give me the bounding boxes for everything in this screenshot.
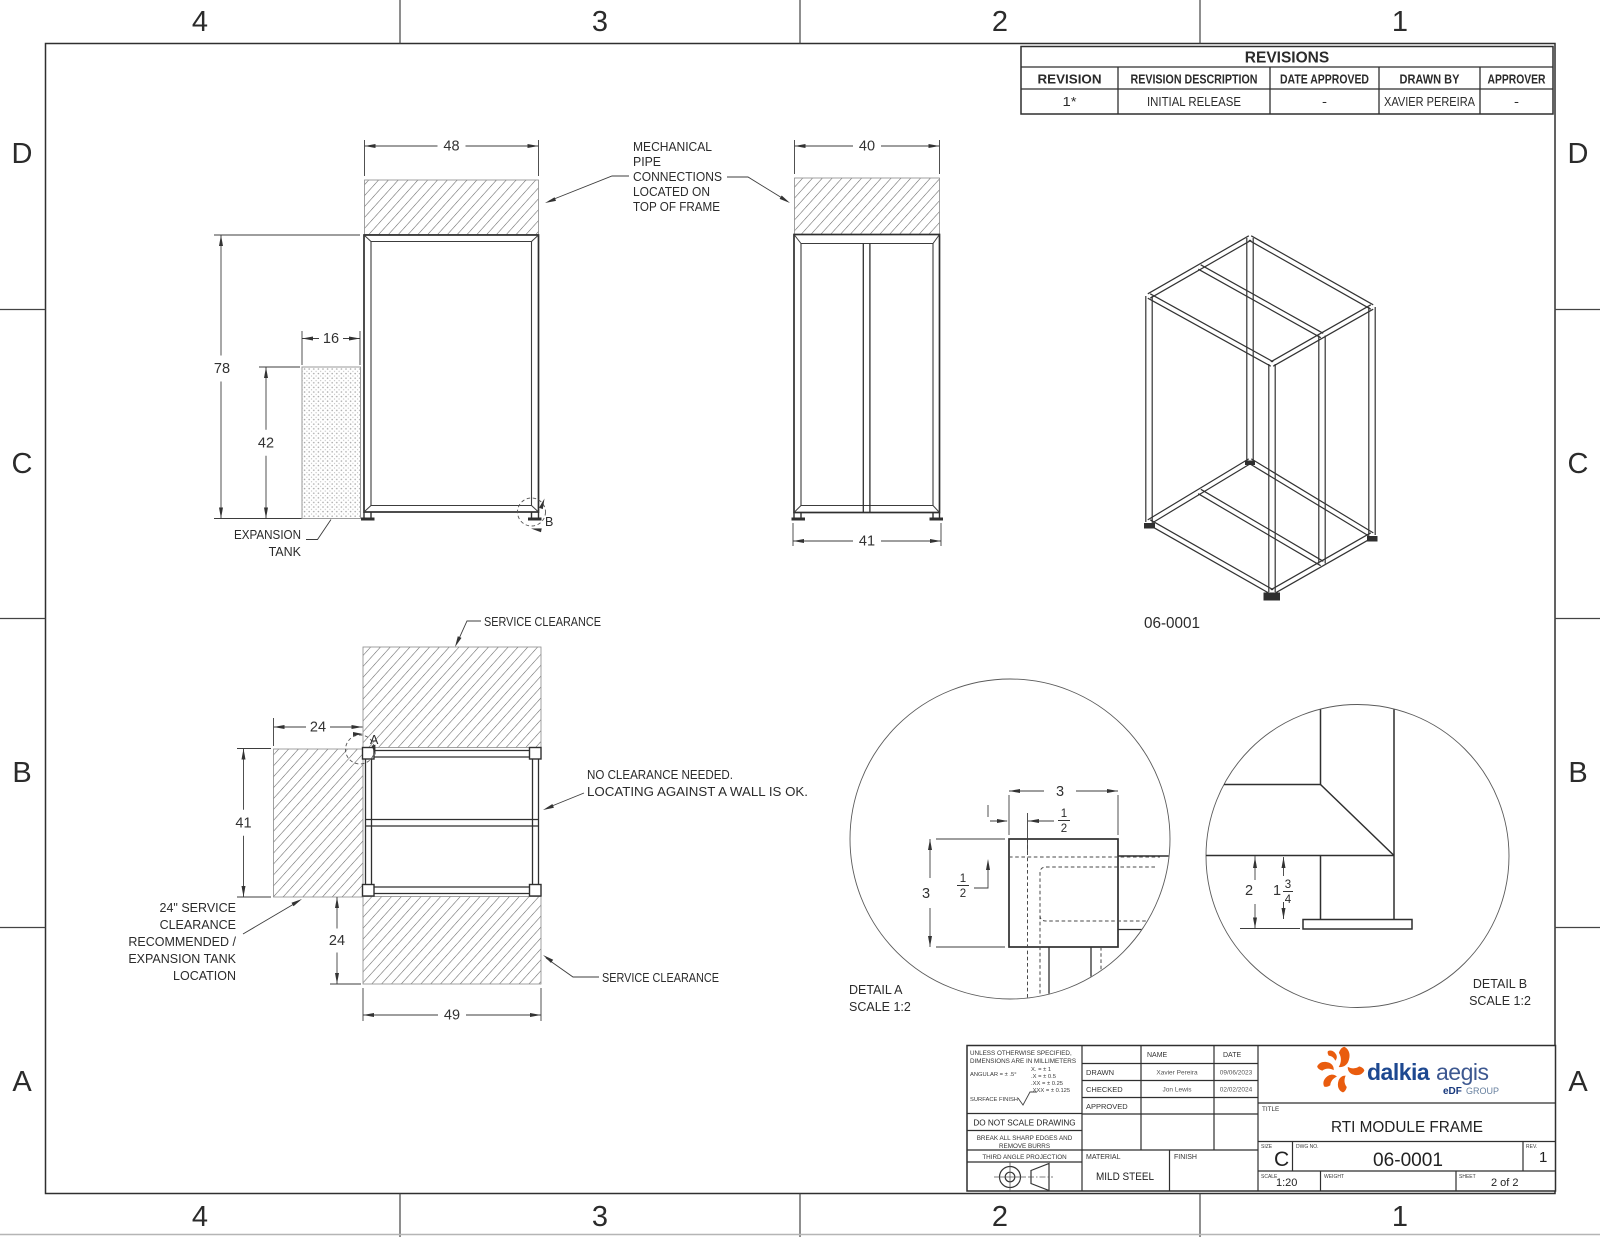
svg-text:02/02/2024: 02/02/2024 [1220, 1087, 1253, 1094]
svg-text:SIZE: SIZE [1261, 1144, 1273, 1150]
svg-text:3: 3 [1285, 879, 1291, 891]
svg-text:EXPANSION: EXPANSION [234, 528, 301, 542]
svg-text:1: 1 [1061, 808, 1067, 820]
svg-text:CHECKED: CHECKED [1086, 1085, 1123, 1094]
svg-text:41: 41 [859, 534, 875, 550]
svg-text:LOCATED ON: LOCATED ON [633, 185, 710, 199]
svg-text:INITIAL RELEASE: INITIAL RELEASE [1147, 94, 1241, 109]
svg-text:XAVIER PEREIRA: XAVIER PEREIRA [1384, 94, 1475, 109]
svg-text:1: 1 [960, 873, 966, 885]
svg-text:REVISION: REVISION [1038, 73, 1102, 87]
svg-text:4: 4 [1285, 894, 1292, 906]
svg-text:DRAWN: DRAWN [1086, 1068, 1114, 1077]
svg-text:.X = ± 0.5: .X = ± 0.5 [1031, 1074, 1056, 1080]
svg-text:DATE: DATE [1223, 1052, 1241, 1059]
svg-text:B: B [1568, 757, 1587, 789]
svg-text:3: 3 [592, 1201, 608, 1233]
svg-text:LOCATION: LOCATION [173, 969, 236, 983]
svg-text:DWG NO.: DWG NO. [1296, 1144, 1319, 1150]
svg-text:Jon Lewis: Jon Lewis [1163, 1087, 1193, 1094]
svg-text:2: 2 [992, 6, 1008, 38]
svg-text:3: 3 [1056, 784, 1064, 800]
svg-text:C: C [1274, 1148, 1289, 1171]
svg-text:2: 2 [1245, 883, 1253, 899]
svg-text:CONNECTIONS: CONNECTIONS [633, 170, 722, 184]
svg-text:DRAWN BY: DRAWN BY [1400, 73, 1461, 87]
svg-text:MILD STEEL: MILD STEEL [1096, 1171, 1154, 1183]
svg-text:SERVICE CLEARANCE: SERVICE CLEARANCE [602, 971, 719, 985]
svg-text:16: 16 [323, 331, 339, 347]
svg-text:Xavier Pereira: Xavier Pereira [1156, 1070, 1198, 1077]
svg-text:.XX = ± 0.25: .XX = ± 0.25 [1031, 1081, 1063, 1087]
svg-text:09/06/2023: 09/06/2023 [1220, 1070, 1253, 1077]
svg-text:D: D [12, 138, 33, 170]
svg-text:WEIGHT: WEIGHT [1324, 1174, 1344, 1180]
svg-text:LOCATING AGAINST A WALL IS OK.: LOCATING AGAINST A WALL IS OK. [587, 785, 808, 799]
svg-text:06-0001: 06-0001 [1144, 615, 1200, 632]
svg-text:APPROVER: APPROVER [1488, 73, 1546, 87]
svg-text:4: 4 [192, 1201, 208, 1233]
svg-text:24: 24 [329, 933, 345, 949]
svg-text:eDF: eDF [1443, 1086, 1462, 1097]
svg-text:2 of 2: 2 of 2 [1491, 1177, 1519, 1189]
svg-text:EXPANSION TANK: EXPANSION TANK [128, 952, 236, 966]
svg-text:ANGULAR = ± .5°: ANGULAR = ± .5° [970, 1072, 1017, 1078]
svg-text:NAME: NAME [1147, 1052, 1168, 1059]
svg-text:3: 3 [922, 886, 930, 902]
svg-text:06-0001: 06-0001 [1373, 1150, 1443, 1171]
svg-text:TANK: TANK [269, 545, 302, 559]
svg-text:REV.: REV. [1526, 1144, 1537, 1150]
svg-text:1: 1 [1392, 1201, 1408, 1233]
svg-text:2: 2 [960, 888, 966, 900]
svg-text:DO NOT SCALE DRAWING: DO NOT SCALE DRAWING [973, 1119, 1075, 1128]
svg-text:SERVICE CLEARANCE: SERVICE CLEARANCE [484, 615, 601, 629]
svg-text:RTI MODULE FRAME: RTI MODULE FRAME [1331, 1119, 1483, 1136]
svg-text:24" SERVICE: 24" SERVICE [160, 901, 236, 915]
svg-text:MATERIAL: MATERIAL [1086, 1154, 1121, 1161]
svg-text:DATE APPROVED: DATE APPROVED [1280, 73, 1369, 87]
svg-text:aegis: aegis [1436, 1059, 1488, 1085]
svg-text:78: 78 [214, 361, 230, 377]
svg-text:GROUP: GROUP [1466, 1086, 1499, 1096]
svg-text:1:20: 1:20 [1276, 1177, 1297, 1189]
svg-text:-: - [1322, 94, 1327, 109]
svg-text:BREAK ALL SHARP EDGES AND: BREAK ALL SHARP EDGES AND [977, 1135, 1073, 1142]
svg-text:TITLE: TITLE [1262, 1106, 1279, 1113]
svg-text:TOP OF FRAME: TOP OF FRAME [633, 200, 720, 214]
svg-text:SHEET: SHEET [1459, 1174, 1476, 1180]
svg-text:1: 1 [1392, 6, 1408, 38]
svg-text:C: C [12, 448, 33, 480]
svg-text:B: B [545, 515, 553, 529]
svg-text:RECOMMENDED /: RECOMMENDED / [128, 935, 236, 949]
svg-text:1: 1 [1539, 1149, 1547, 1166]
svg-text:2: 2 [992, 1201, 1008, 1233]
svg-text:-: - [1514, 94, 1519, 109]
svg-text:42: 42 [258, 435, 274, 451]
svg-text:D: D [1568, 138, 1589, 170]
svg-text:REMOVE BURRS: REMOVE BURRS [999, 1143, 1050, 1150]
svg-text:1*: 1* [1063, 94, 1077, 109]
svg-text:DETAIL A: DETAIL A [849, 983, 903, 997]
svg-text:SURFACE FINISH: SURFACE FINISH [970, 1097, 1018, 1103]
svg-text:48: 48 [443, 139, 459, 155]
svg-text:.XXX = ± 0.125: .XXX = ± 0.125 [1031, 1088, 1070, 1094]
svg-text:PIPE: PIPE [633, 155, 661, 169]
svg-text:X. = ± 1: X. = ± 1 [1031, 1067, 1051, 1073]
svg-text:THIRD ANGLE PROJECTION: THIRD ANGLE PROJECTION [982, 1154, 1067, 1161]
svg-text:dalkia: dalkia [1367, 1059, 1430, 1085]
svg-text:CLEARANCE: CLEARANCE [160, 918, 236, 932]
svg-text:40: 40 [859, 139, 875, 155]
svg-text:49: 49 [444, 1008, 460, 1024]
svg-text:A: A [1568, 1066, 1588, 1098]
svg-text:3: 3 [592, 6, 608, 38]
svg-text:NO CLEARANCE NEEDED.: NO CLEARANCE NEEDED. [587, 768, 733, 782]
svg-text:4: 4 [192, 6, 208, 38]
svg-text:A: A [12, 1066, 32, 1098]
svg-text:REVISIONS: REVISIONS [1245, 50, 1329, 67]
svg-text:41: 41 [235, 816, 251, 832]
svg-text:SCALE 1:2: SCALE 1:2 [1469, 994, 1531, 1008]
svg-text:A: A [370, 733, 379, 747]
svg-text:2: 2 [1061, 823, 1067, 835]
svg-text:DETAIL B: DETAIL B [1473, 977, 1527, 991]
svg-text:REVISION DESCRIPTION: REVISION DESCRIPTION [1131, 73, 1258, 87]
svg-text:UNLESS OTHERWISE SPECIFIED,: UNLESS OTHERWISE SPECIFIED, [970, 1050, 1072, 1057]
svg-text:C: C [1568, 448, 1589, 480]
svg-text:FINISH: FINISH [1174, 1154, 1197, 1161]
svg-text:MECHANICAL: MECHANICAL [633, 140, 712, 154]
svg-text:1: 1 [1273, 883, 1281, 899]
svg-text:APPROVED: APPROVED [1086, 1102, 1128, 1111]
svg-text:SCALE 1:2: SCALE 1:2 [849, 1000, 911, 1014]
svg-text:B: B [12, 757, 31, 789]
svg-text:DIMENSIONS ARE IN MILLIMETERS: DIMENSIONS ARE IN MILLIMETERS [970, 1058, 1076, 1065]
svg-text:24: 24 [310, 720, 326, 736]
